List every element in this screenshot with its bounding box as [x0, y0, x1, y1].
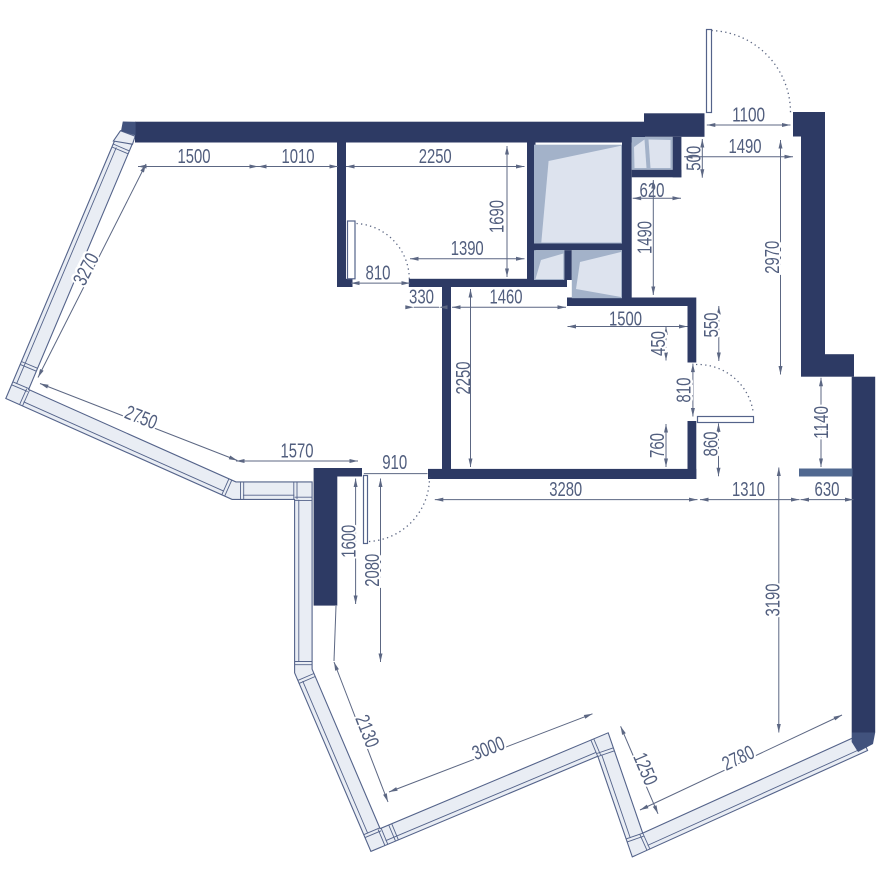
svg-text:330: 330	[409, 287, 434, 309]
svg-text:3280: 3280	[549, 479, 582, 501]
svg-text:450: 450	[648, 331, 670, 356]
svg-text:1100: 1100	[732, 104, 765, 126]
svg-text:630: 630	[815, 479, 840, 501]
svg-text:1140: 1140	[811, 406, 833, 439]
svg-text:860: 860	[700, 432, 722, 457]
svg-text:1600: 1600	[338, 525, 360, 558]
svg-text:810: 810	[366, 263, 391, 285]
svg-text:2080: 2080	[362, 554, 384, 587]
svg-text:1490: 1490	[635, 221, 657, 254]
svg-text:1010: 1010	[282, 146, 315, 168]
svg-text:3190: 3190	[763, 584, 785, 617]
svg-text:550: 550	[701, 313, 723, 338]
svg-text:760: 760	[647, 433, 669, 458]
svg-text:1390: 1390	[451, 238, 484, 260]
svg-text:1570: 1570	[281, 440, 314, 462]
svg-text:1500: 1500	[178, 146, 211, 168]
svg-text:1500: 1500	[609, 309, 642, 331]
svg-text:1460: 1460	[490, 287, 523, 309]
svg-text:2250: 2250	[453, 362, 475, 395]
svg-text:1490: 1490	[729, 136, 762, 158]
svg-text:500: 500	[684, 146, 706, 171]
svg-text:1690: 1690	[487, 200, 509, 233]
svg-text:2970: 2970	[762, 241, 784, 274]
svg-text:620: 620	[640, 180, 665, 202]
svg-text:810: 810	[674, 378, 696, 403]
svg-text:910: 910	[382, 452, 407, 474]
svg-text:2250: 2250	[419, 146, 452, 168]
svg-text:1310: 1310	[732, 479, 765, 501]
